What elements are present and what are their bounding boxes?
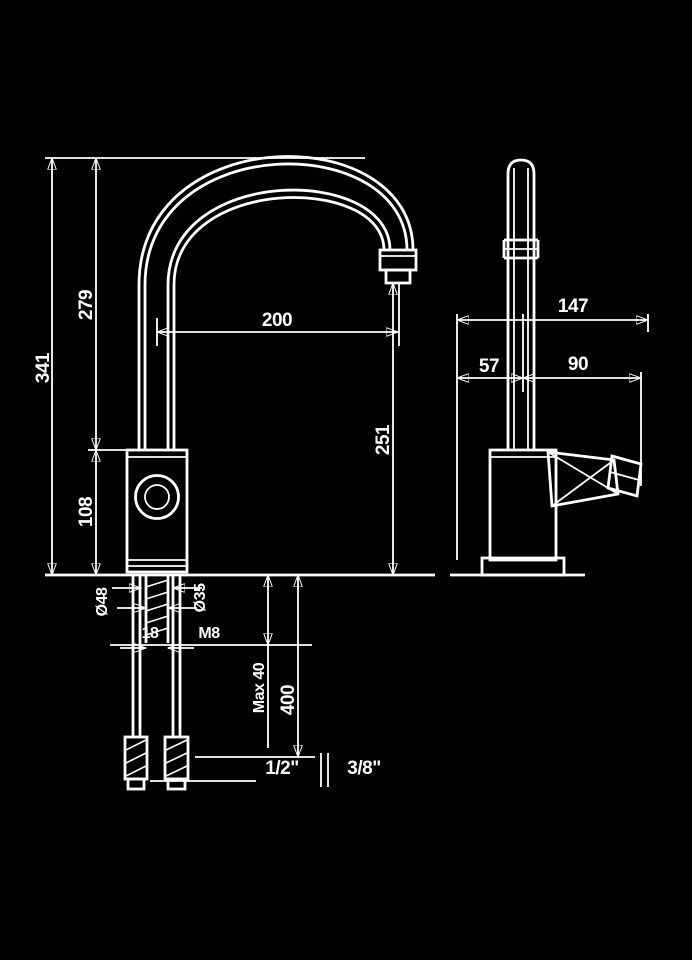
front-view <box>45 156 435 789</box>
faucet-technical-drawing: 341 279 108 200 251 Ø48 Ø35 18 M8 Max 40… <box>0 0 692 960</box>
dim-max-counter-thickness: Max 40 <box>251 662 268 713</box>
aerator <box>380 250 416 283</box>
front-view-dimensions <box>45 158 399 787</box>
faucet-body <box>127 450 187 572</box>
dim-front-offset: 57 <box>479 356 499 377</box>
dim-base-diameter: Ø48 <box>94 587 111 616</box>
dim-hose-length: 400 <box>278 685 299 715</box>
spout-tube <box>139 156 413 450</box>
dimension-labels: 341 279 108 200 251 Ø48 Ø35 18 M8 Max 40… <box>33 290 588 779</box>
technical-drawing-canvas: 341 279 108 200 251 Ø48 Ø35 18 M8 Max 40… <box>0 0 692 960</box>
dim-stud-thread: M8 <box>198 625 220 642</box>
dim-upper-height: 279 <box>76 290 97 320</box>
dim-body-height: 108 <box>76 497 97 527</box>
dim-shank-length: 18 <box>142 625 159 642</box>
supply-hoses <box>133 575 180 737</box>
side-view-dimensions <box>457 314 648 560</box>
dim-total-height: 341 <box>33 352 54 383</box>
dim-rear-offset: 90 <box>568 354 588 375</box>
side-handle-lever <box>548 452 641 506</box>
dim-connection-right: 3/8" <box>347 758 380 779</box>
dim-spout-clearance: 251 <box>373 424 394 455</box>
handle-knob <box>136 476 179 519</box>
dim-spout-reach: 200 <box>262 310 292 331</box>
side-spout-column <box>504 160 538 450</box>
dim-total-depth: 147 <box>558 296 588 317</box>
side-body <box>482 450 564 575</box>
dim-connection-left: 1/2" <box>265 758 298 779</box>
dim-shank-diameter: Ø35 <box>192 583 209 612</box>
